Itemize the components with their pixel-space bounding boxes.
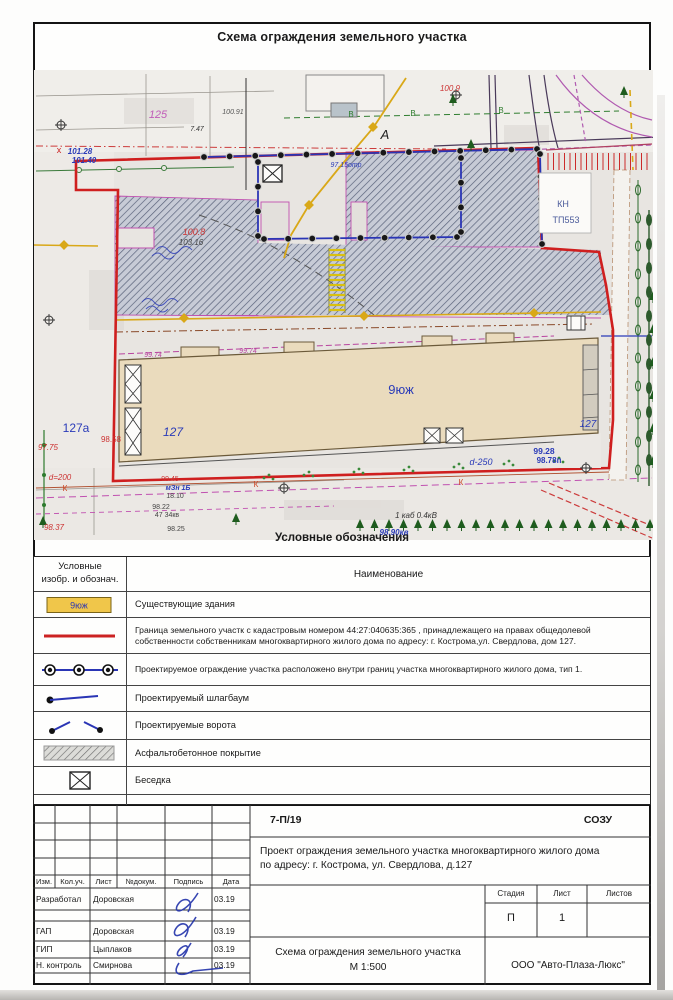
map-label: d=200: [49, 473, 72, 482]
legend-row-barrier: Проектируемый шлагбаум: [34, 685, 650, 711]
map-label: 98.22: [152, 504, 170, 511]
map-label: 99.74: [239, 348, 257, 355]
map-label: 101.28: [68, 147, 93, 156]
map-label: 101.40: [72, 156, 97, 165]
map-label: 98.37: [44, 523, 65, 532]
legend-row-text: Беседка: [127, 767, 650, 794]
project-title-line1: Проект ограждения земельного участка мно…: [260, 846, 599, 857]
map-label: х: [57, 145, 62, 155]
legend-symbol-cell: 9юж: [34, 592, 127, 617]
page-title: Схема ограждения земельного участка: [33, 30, 651, 44]
map-label: КН: [557, 199, 569, 209]
map-label: d-250: [469, 457, 492, 467]
site-plan-map: 125100.917.47101.28101.40хА100.9ВВВ97.15…: [34, 70, 653, 540]
stamp-person-name: Цыплаков: [93, 944, 163, 954]
legend-row-text: Существующие здания: [127, 592, 650, 617]
stamp-person-name: Смирнова: [93, 960, 163, 970]
legend-row-fence: Проектируемое ограждение участка располо…: [34, 653, 650, 685]
legend-symbol-cell: [34, 618, 127, 653]
sheet-scale: М 1:500: [350, 962, 387, 973]
stage-value: П: [485, 912, 537, 924]
map-label: 125: [149, 109, 168, 121]
fence-icon: [34, 657, 126, 683]
legend-row-text: Проектируемый шлагбаум: [127, 686, 650, 711]
legend-row-gates: Проектируемые ворота: [34, 711, 650, 739]
stage-label: Стадия: [485, 889, 537, 898]
map-label: 97.75: [38, 443, 59, 452]
existing-building-icon: 9юж: [34, 592, 126, 618]
col-izm: Изм.: [33, 877, 55, 886]
map-label: 7.47: [190, 126, 205, 133]
legend-row-site-boundary: Граница земельного участк с кадастровым …: [34, 617, 650, 653]
legend-symbol-cell: [34, 740, 127, 766]
small-structure: [567, 316, 585, 330]
scanned-sheet: { "page": { "top_title": "Схема огражден…: [0, 0, 673, 1000]
legend-row-text: Асфальтобетонное покрытие: [127, 740, 650, 766]
hatch-notch: [118, 228, 154, 248]
legend-symbol-header: Условныеизобр. и обознач.: [34, 557, 127, 591]
gazebo-icon: [34, 768, 126, 794]
legend-row-existing-building: 9южСуществующие здания: [34, 591, 650, 617]
legend-name-header: Наименование: [127, 557, 650, 591]
map-label: 127а: [63, 421, 90, 435]
map-label: 127: [163, 425, 184, 439]
gates-icon: [34, 713, 126, 739]
col-koluch: Кол.уч.: [55, 877, 90, 886]
legend-title: Условные обозначения: [33, 532, 651, 544]
sheet-value: 1: [537, 912, 587, 924]
gazebo-symbol-map: [263, 165, 282, 182]
map-label: 99.28: [533, 446, 555, 456]
svg-text:9юж: 9юж: [70, 600, 88, 610]
stamp-date: 03.19: [214, 926, 250, 936]
legend-symbol-cell: [34, 686, 127, 711]
legend-table: Условныеизобр. и обознач.Наименование9юж…: [33, 556, 651, 805]
stamp-role: Н. контроль: [36, 960, 90, 970]
legend-row-text: Граница земельного участк с кадастровым …: [127, 618, 650, 653]
scan-edge-right: [657, 95, 665, 990]
map-label: В: [410, 109, 415, 118]
col-ndokum: №докум.: [117, 877, 165, 886]
sheet-label: Лист: [537, 889, 587, 898]
col-list: Лист: [90, 877, 117, 886]
map-label: 97.15отр: [330, 162, 361, 169]
legend-symbol-cell: [34, 654, 127, 685]
stamp-role: ГАП: [36, 926, 90, 936]
stamp-person-name: Доровская: [93, 894, 163, 904]
col-podpis: Подпись: [165, 877, 212, 886]
project-title-line2: по адресу: г. Кострома, ул. Свердлова, д…: [260, 860, 472, 871]
site-boundary-icon: [34, 623, 126, 649]
stamp-date: 03.19: [214, 944, 250, 954]
stamp-role: ГИП: [36, 944, 90, 954]
map-label: В: [348, 110, 353, 119]
stamp-role: Разработал: [36, 894, 90, 904]
col-data: Дата: [212, 877, 250, 886]
map-label: ТП553: [553, 215, 580, 225]
map-label: К: [459, 478, 464, 487]
map-label: К: [63, 484, 68, 493]
top-building-footprint: [306, 75, 384, 117]
map-label: 127: [580, 419, 597, 430]
map-label: В: [498, 106, 503, 115]
map-label: К: [254, 480, 259, 489]
doc-number: 7-П/19: [270, 814, 301, 826]
map-label: мЗн 1Б: [166, 485, 191, 492]
map-label: 99.45: [161, 476, 179, 483]
stamp-date: 03.19: [214, 960, 250, 970]
map-label: 98.58: [101, 435, 122, 444]
legend-row-text: Проектируемые ворота: [127, 712, 650, 739]
org-code: СОЗУ: [553, 814, 643, 826]
barrier-icon: [34, 686, 126, 712]
map-label: А: [380, 127, 390, 142]
map-label: 18.10: [166, 493, 184, 500]
legend-symbol-cell: [34, 712, 127, 739]
map-label: 9юж: [388, 382, 414, 397]
asphalt-icon: [34, 740, 126, 766]
stamp-date: 03.19: [214, 894, 250, 904]
legend-row-asphalt: Асфальтобетонное покрытие: [34, 739, 650, 766]
map-label: 103.16: [179, 238, 204, 247]
legend-row-gazebo: Беседка: [34, 766, 650, 794]
map-label: 1 каб 0.4кВ: [395, 511, 438, 520]
stamp-person-name: Доровская: [93, 926, 163, 936]
legend-row-text: Проектируемое ограждение участка располо…: [127, 654, 650, 685]
sheets-label: Листов: [587, 889, 651, 898]
map-label: 47 34кв: [155, 512, 180, 519]
map-label: 98.78п: [537, 456, 562, 465]
map-label: 100.91: [222, 109, 244, 116]
map-label: 100.8: [183, 227, 206, 237]
legend-symbol-cell: [34, 767, 127, 794]
map-label: 100.9: [440, 84, 461, 93]
title-block: 7-П/19 СОЗУ Проект ограждения земельного…: [33, 805, 651, 985]
company-name: ООО "Авто-Плаза-Люкс": [485, 960, 651, 971]
map-label: 99.74: [144, 352, 162, 359]
sheet-title: Схема ограждения земельного участка: [275, 947, 461, 958]
legend-header-row: Условныеизобр. и обознач.Наименование: [34, 557, 650, 591]
scan-edge-bottom: [0, 990, 673, 1000]
